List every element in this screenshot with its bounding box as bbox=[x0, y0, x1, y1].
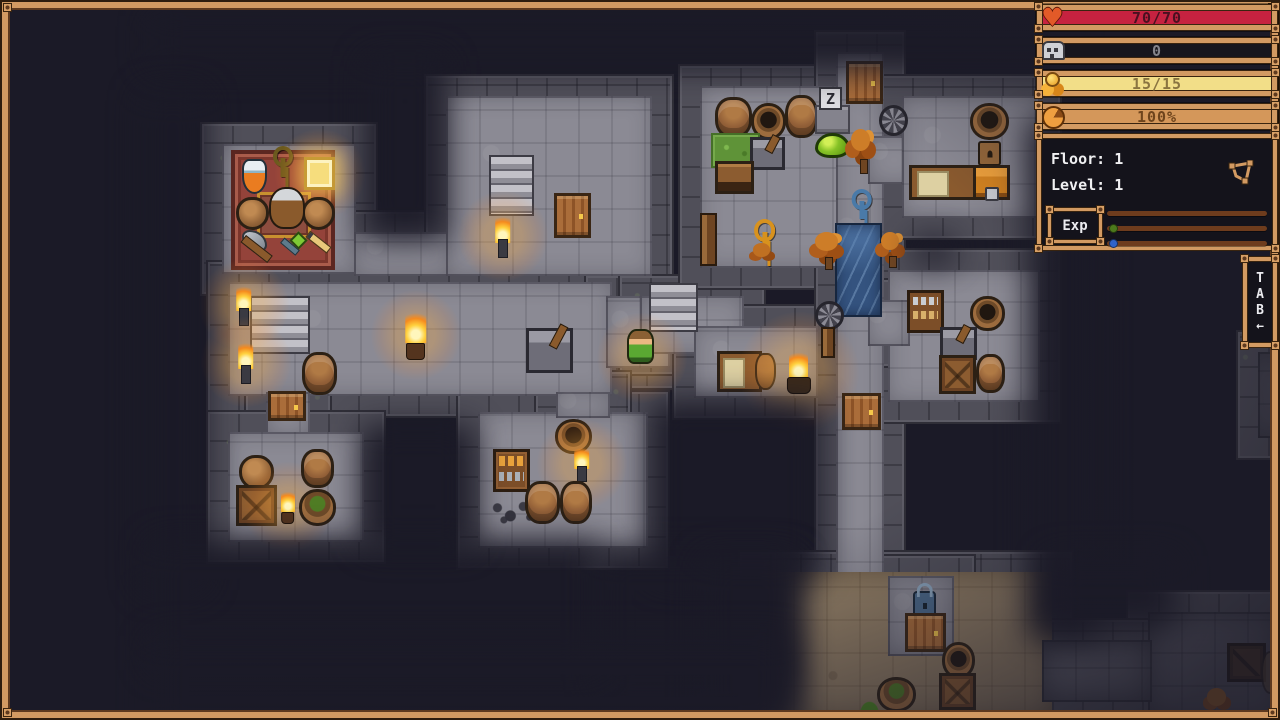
info-panel: Floor: 1 Level: 1 Exp bbox=[1036, 133, 1278, 251]
frame-rivet bbox=[1034, 68, 1043, 77]
frame-rivet bbox=[1271, 2, 1280, 11]
stairs-sprite bbox=[250, 296, 310, 354]
torch-sprite bbox=[233, 283, 254, 326]
fog-of-war bbox=[140, 90, 206, 590]
gold-bar-value: 15/15 bbox=[1132, 75, 1182, 93]
axe-sprite bbox=[242, 230, 277, 263]
barrel-sprite bbox=[301, 449, 334, 488]
creature-sprite bbox=[269, 187, 305, 229]
barrel-sprite bbox=[560, 481, 592, 524]
lever-sprite bbox=[526, 328, 573, 373]
frame-rivet bbox=[1240, 254, 1249, 263]
pot-sprite bbox=[236, 197, 269, 230]
door-sprite bbox=[268, 391, 306, 421]
frame-rivet bbox=[1096, 237, 1105, 246]
tuft-sprite bbox=[858, 699, 881, 714]
frame-rivet bbox=[1271, 244, 1280, 253]
pot-sprite bbox=[302, 197, 335, 230]
player-character-sprite bbox=[627, 329, 654, 364]
torch-sprite bbox=[492, 213, 513, 258]
exp-row-1 bbox=[1107, 211, 1267, 216]
shelf-sprite bbox=[493, 449, 530, 492]
stairs-sprite bbox=[649, 283, 698, 332]
chestwood-sprite bbox=[715, 161, 754, 194]
game-screen: Z 70/70015/15100% Floor: 1 Level: 1 Exp … bbox=[0, 0, 1280, 720]
bench-sprite bbox=[909, 165, 978, 200]
frame-rivet bbox=[1034, 90, 1043, 99]
frame-rivet bbox=[1271, 131, 1280, 140]
health-bar-value: 70/70 bbox=[1132, 9, 1182, 27]
windmill-sprite bbox=[879, 105, 908, 136]
coins-icon bbox=[1040, 71, 1065, 97]
fog-of-war bbox=[150, 16, 1070, 68]
frame-rivet bbox=[1034, 131, 1043, 140]
frame-rivet bbox=[1271, 24, 1280, 33]
tree-sprite bbox=[805, 229, 850, 270]
food-icon bbox=[1040, 104, 1065, 130]
tab-letter: B bbox=[1256, 303, 1264, 318]
windmill-sprite bbox=[815, 301, 844, 330]
barrel-sprite bbox=[715, 97, 752, 138]
fog-of-war bbox=[364, 56, 446, 240]
frame-rivet bbox=[1034, 101, 1043, 110]
frame-rivet bbox=[1034, 57, 1043, 66]
blue-key-sprite bbox=[850, 189, 873, 220]
tab-letter: T bbox=[1256, 271, 1264, 286]
fog-of-war bbox=[150, 636, 790, 720]
exp-label-box: Exp bbox=[1047, 207, 1103, 244]
satiety-bar-fill: 100% bbox=[1043, 110, 1271, 123]
potplant-sprite bbox=[877, 677, 916, 712]
frame-rivet bbox=[1271, 57, 1280, 66]
barrel-sprite bbox=[302, 352, 337, 395]
bush-sprite bbox=[744, 239, 779, 266]
satiety-bar: 100% bbox=[1036, 103, 1278, 130]
dungeon-floor bbox=[556, 392, 610, 418]
heart-icon bbox=[1040, 5, 1065, 31]
dark-key-sprite bbox=[272, 146, 294, 178]
satiety-bar-value: 100% bbox=[1137, 108, 1177, 126]
frame-rivet bbox=[1034, 244, 1043, 253]
tab-letter: A bbox=[1256, 287, 1264, 302]
crate2-sprite bbox=[236, 485, 277, 526]
barrel-sprite bbox=[525, 481, 560, 524]
jug-sprite bbox=[755, 353, 776, 390]
brazier-sprite bbox=[785, 349, 812, 394]
exp-row-3 bbox=[1107, 241, 1267, 246]
frame-rivet bbox=[1034, 35, 1043, 44]
fog-of-war bbox=[362, 424, 474, 548]
torch-sprite bbox=[571, 445, 592, 482]
gold-bar-fill: 15/15 bbox=[1043, 77, 1271, 90]
frame-rivet bbox=[1271, 90, 1280, 99]
potopen-sprite bbox=[970, 103, 1009, 140]
door-sprite bbox=[905, 613, 946, 652]
chestsmall-sprite bbox=[978, 141, 1001, 166]
exp-label: Exp bbox=[1062, 218, 1087, 234]
exp-dot-2 bbox=[1109, 224, 1118, 233]
exp-dot-3 bbox=[1109, 239, 1118, 248]
tree-sprite bbox=[843, 125, 880, 174]
sleep-indicator-sprite: Z bbox=[819, 87, 842, 110]
bookshelf-sprite bbox=[907, 290, 944, 333]
crate2-sprite bbox=[939, 673, 976, 710]
chest-sprite bbox=[973, 165, 1010, 200]
frame-rivet bbox=[1271, 341, 1280, 350]
level-label: Level: 1 bbox=[1051, 176, 1123, 194]
floor-label: Floor: 1 bbox=[1051, 150, 1123, 168]
barrel-sprite bbox=[976, 354, 1005, 393]
frame-rivet bbox=[1034, 2, 1043, 11]
health-bar-fill: 70/70 bbox=[1043, 11, 1271, 24]
skull-icon bbox=[1040, 38, 1065, 64]
crate2-sprite bbox=[939, 355, 976, 394]
map-icon[interactable] bbox=[1228, 160, 1255, 187]
frame-rivet bbox=[1045, 237, 1054, 246]
health-bar: 70/70 bbox=[1036, 4, 1278, 31]
door-sprite bbox=[842, 393, 881, 430]
post-sprite bbox=[700, 213, 717, 266]
fog-of-war bbox=[914, 238, 954, 264]
tree-sprite bbox=[873, 229, 908, 268]
book-sprite bbox=[304, 157, 335, 190]
frame-rivet bbox=[1034, 24, 1043, 33]
frame-rivet bbox=[1045, 205, 1054, 214]
candle-sprite bbox=[401, 309, 430, 360]
exp-row-2 bbox=[1107, 226, 1267, 231]
stairs-sprite bbox=[489, 155, 534, 216]
potion-sprite bbox=[242, 159, 267, 194]
dungeon-floor bbox=[446, 96, 652, 276]
hud-panel: 70/70015/15100% Floor: 1 Level: 1 Exp TA… bbox=[1034, 0, 1280, 720]
door-sprite bbox=[554, 193, 591, 238]
frame-rivet bbox=[1271, 254, 1280, 263]
candle-sprite bbox=[278, 489, 297, 524]
skull-bar-value: 0 bbox=[1152, 42, 1162, 60]
skull-bar-fill: 0 bbox=[1043, 44, 1271, 57]
frame-rivet bbox=[1271, 35, 1280, 44]
frame-rivet bbox=[1271, 68, 1280, 77]
potplant-sprite bbox=[299, 489, 336, 526]
frame-rivet bbox=[1271, 101, 1280, 110]
post-sprite bbox=[821, 327, 835, 358]
gold-bar: 15/15 bbox=[1036, 70, 1278, 97]
frame-rivet bbox=[1096, 205, 1105, 214]
lever-sprite bbox=[750, 137, 785, 170]
tab-arrow-icon: ← bbox=[1256, 319, 1264, 334]
stat-bars: 70/70015/15100% bbox=[1036, 4, 1278, 136]
pencil-sprite bbox=[304, 232, 333, 263]
wand-sprite bbox=[278, 234, 303, 263]
skull-bar: 0 bbox=[1036, 37, 1278, 64]
frame-rivet bbox=[1240, 341, 1249, 350]
tuft-sprite bbox=[938, 711, 963, 720]
barrel-sprite bbox=[785, 95, 818, 138]
torch-sprite bbox=[235, 339, 256, 384]
tab-button[interactable]: TAB← bbox=[1242, 256, 1278, 348]
potopen-sprite bbox=[970, 296, 1005, 331]
